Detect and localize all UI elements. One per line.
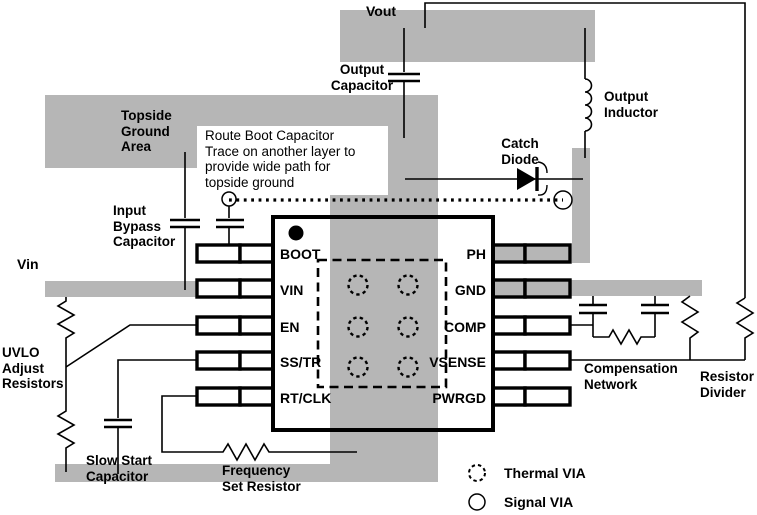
output-capacitor-label: Output Capacitor	[326, 62, 398, 93]
slow-start-capacitor-icon	[104, 420, 132, 427]
route-note-label: Route Boot Capacitor Trace on another la…	[205, 128, 355, 190]
uvlo-adjust-resistors-label: UVLO Adjust Resistors	[2, 345, 64, 392]
thermal-via-icon	[349, 318, 368, 337]
pad-gnd	[493, 280, 570, 297]
pcb-layout-diagram: Vout Output Capacitor Output Inductor To…	[0, 0, 757, 515]
pin-label-ph: PH	[400, 246, 486, 262]
output-inductor-label: Output Inductor	[604, 89, 658, 120]
compensation-network-label: Compensation Network	[584, 361, 678, 392]
pad-ph	[493, 245, 570, 262]
resistor-divider-upper	[737, 298, 753, 360]
pin-label-pwrgd: PWRGD	[400, 390, 486, 406]
pad-vin	[197, 280, 273, 297]
legend-signal-via-icon	[469, 494, 485, 510]
pad-boot	[197, 245, 273, 262]
catch-diode-label: Catch Diode	[497, 136, 543, 167]
pad-rt-clk	[197, 388, 273, 405]
pin-label-vin: VIN	[280, 282, 303, 298]
legend-thermal-via-label: Thermal VIA	[504, 465, 586, 481]
pin-label-gnd: GND	[400, 282, 486, 298]
thermal-via-icon	[349, 276, 368, 295]
legend-thermal-via-icon	[469, 465, 485, 481]
thermal-via-icon	[349, 358, 368, 377]
resistor-divider-lower	[682, 296, 698, 360]
legend-signal-via-label: Signal VIA	[504, 494, 573, 510]
slow-start-capacitor-label: Slow Start Capacitor	[86, 453, 152, 484]
input-bypass-capacitor-label: Input Bypass Capacitor	[113, 203, 175, 250]
pad-comp	[493, 317, 570, 334]
resistor-divider-label: Resistor Divider	[700, 369, 754, 400]
pad-pwrgd	[493, 388, 570, 405]
pad-en	[197, 317, 273, 334]
vout-label: Vout	[366, 3, 396, 19]
pin-label-boot: BOOT	[280, 246, 320, 262]
comp-cap1-icon	[579, 305, 607, 313]
pin-label-vsense: VSENSE	[400, 354, 486, 370]
boot-capacitor-icon	[216, 220, 244, 227]
vin-label: Vin	[17, 256, 39, 272]
inductor-coil-icon	[585, 79, 592, 131]
pad-ss-tr	[197, 352, 273, 369]
topside-ground-area-label: Topside Ground Area	[121, 108, 172, 155]
comp-resistor	[593, 330, 655, 344]
catch-diode-icon	[517, 168, 536, 190]
frequency-set-resistor-label: Frequency Set Resistor	[222, 463, 301, 494]
comp-cap2-icon	[641, 305, 669, 313]
pin1-marker-icon	[289, 226, 304, 241]
pin-label-en: EN	[280, 319, 299, 335]
diode-hook-bottom	[538, 185, 547, 195]
pin-label-comp: COMP	[400, 319, 486, 335]
pad-vsense	[493, 352, 570, 369]
pin-label-rt-clk: RT/CLK	[280, 390, 331, 406]
pin-label-ss-tr: SS/TR	[280, 354, 321, 370]
